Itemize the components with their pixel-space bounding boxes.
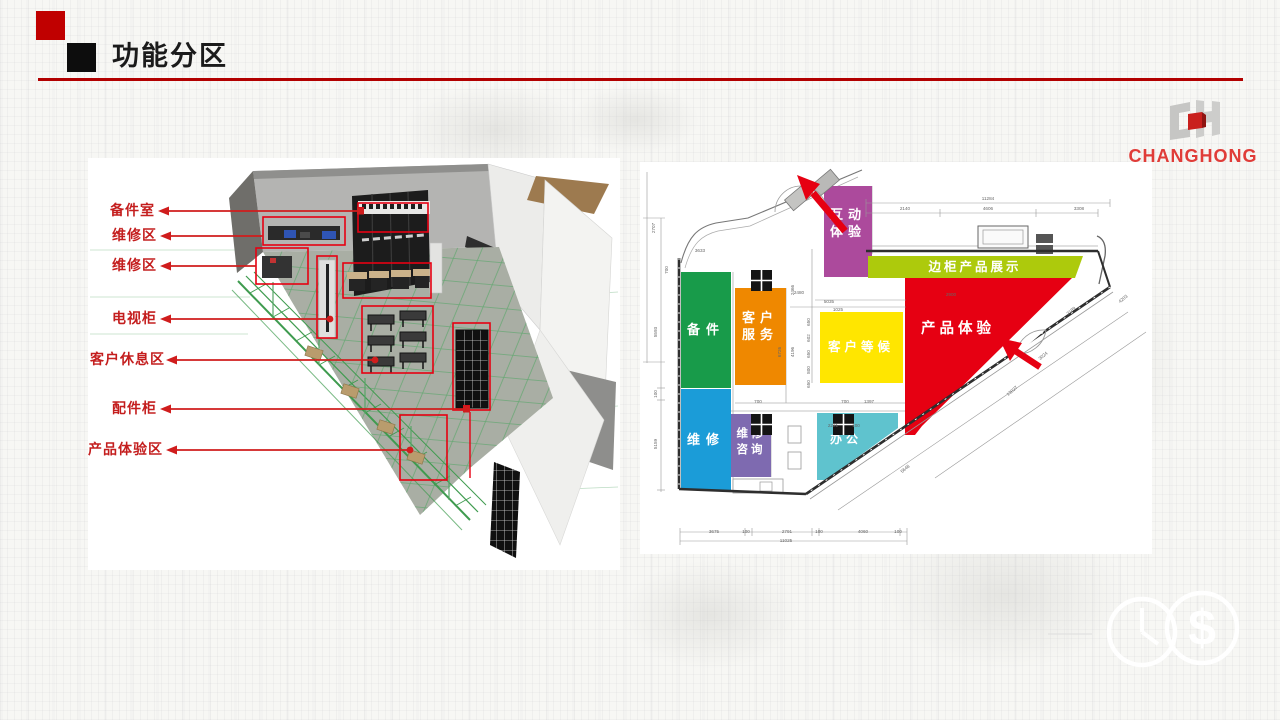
dimension-label: 100 (742, 529, 750, 534)
map-watermark (570, 85, 700, 155)
dimension-label: 4060 (858, 529, 869, 534)
render-label: 维修区 (112, 256, 157, 274)
title-black-square (67, 43, 96, 72)
dimension-label: 3633 (695, 248, 706, 253)
dimension-label: 650 (806, 380, 811, 388)
render-label: 电视柜 (112, 309, 157, 327)
brand-logo-text: CHANGHONG (1118, 146, 1268, 167)
dimension-label: 650 (806, 318, 811, 326)
dimension-label: 2480 (794, 290, 805, 295)
dimension-label: 11025 (780, 538, 793, 543)
floor-plan: 互动体验边柜产品展示备件客户服务客户等候产品体验维修维修咨询办公 (640, 160, 1152, 555)
dimension-label: 100 (894, 529, 902, 534)
zone-label-denghou: 客户等候 (827, 339, 894, 354)
dimension-label: 2707 (651, 222, 656, 233)
dimension-label: 2221 (828, 423, 839, 428)
dimension-label: 4606 (983, 206, 994, 211)
dimension-label: 11284 (982, 196, 995, 201)
dimension-label: 2900 (946, 292, 957, 297)
zone-label-chanpin: 产品体验 (921, 319, 995, 337)
dimension-label: 1025 (833, 307, 844, 312)
presentation-slide: 功能分区 (0, 0, 1280, 720)
zone-label-hudong: 体验 (830, 224, 866, 239)
dimension-label: 1397 (864, 399, 875, 404)
dimension-label: 3675 (709, 529, 720, 534)
dimension-label: 5593 (653, 326, 658, 337)
dimension-label: 6726 (777, 346, 782, 357)
dimension-label: 650 (806, 350, 811, 358)
render-label: 备件室 (110, 201, 155, 219)
dimension-label: 2140 (900, 206, 911, 211)
map-watermark (620, 560, 800, 670)
brand-logo: CHANGHONG (1118, 96, 1268, 166)
dimension-label: 3308 (1074, 206, 1085, 211)
page-title: 功能分区 (112, 34, 228, 73)
dimension-label: 700 (754, 399, 762, 404)
render-3d-view (88, 158, 620, 570)
render-label: 产品体验区 (88, 440, 163, 458)
zone-label-kefu: 服务 (742, 327, 778, 342)
render-label: 维修区 (112, 226, 157, 244)
dimension-label: 100 (653, 390, 658, 398)
zone-label-zixun: 咨询 (737, 442, 766, 456)
zone-label-beijian: 备件 (686, 322, 725, 337)
dimension-label: 5035 (824, 299, 835, 304)
dimension-label: 5159 (653, 438, 658, 449)
zone-label-weixiu: 维修 (687, 432, 725, 447)
dimension-label: 100 (852, 423, 860, 428)
dimension-label: 2466 (790, 284, 795, 295)
dimension-label: 602 (806, 334, 811, 342)
dimension-label: 800 (806, 366, 811, 374)
title-divider (38, 78, 1243, 81)
zone-label-kefu: 客户 (742, 310, 778, 325)
deco-icons: $ (1040, 588, 1270, 698)
render-label: 配件柜 (112, 399, 157, 417)
brand-logo-mark (1164, 98, 1224, 144)
dimension-label: 700 (664, 266, 669, 274)
dimension-label: 100 (815, 529, 823, 534)
dimension-label: 2791 (782, 529, 793, 534)
zone-label-biangui: 边柜产品展示 (927, 259, 1021, 274)
dimension-label: 4196 (790, 346, 795, 357)
title-red-square (36, 11, 65, 40)
render-label: 客户休息区 (90, 350, 165, 368)
dimension-label: 700 (841, 399, 849, 404)
svg-text:$: $ (1188, 600, 1216, 656)
